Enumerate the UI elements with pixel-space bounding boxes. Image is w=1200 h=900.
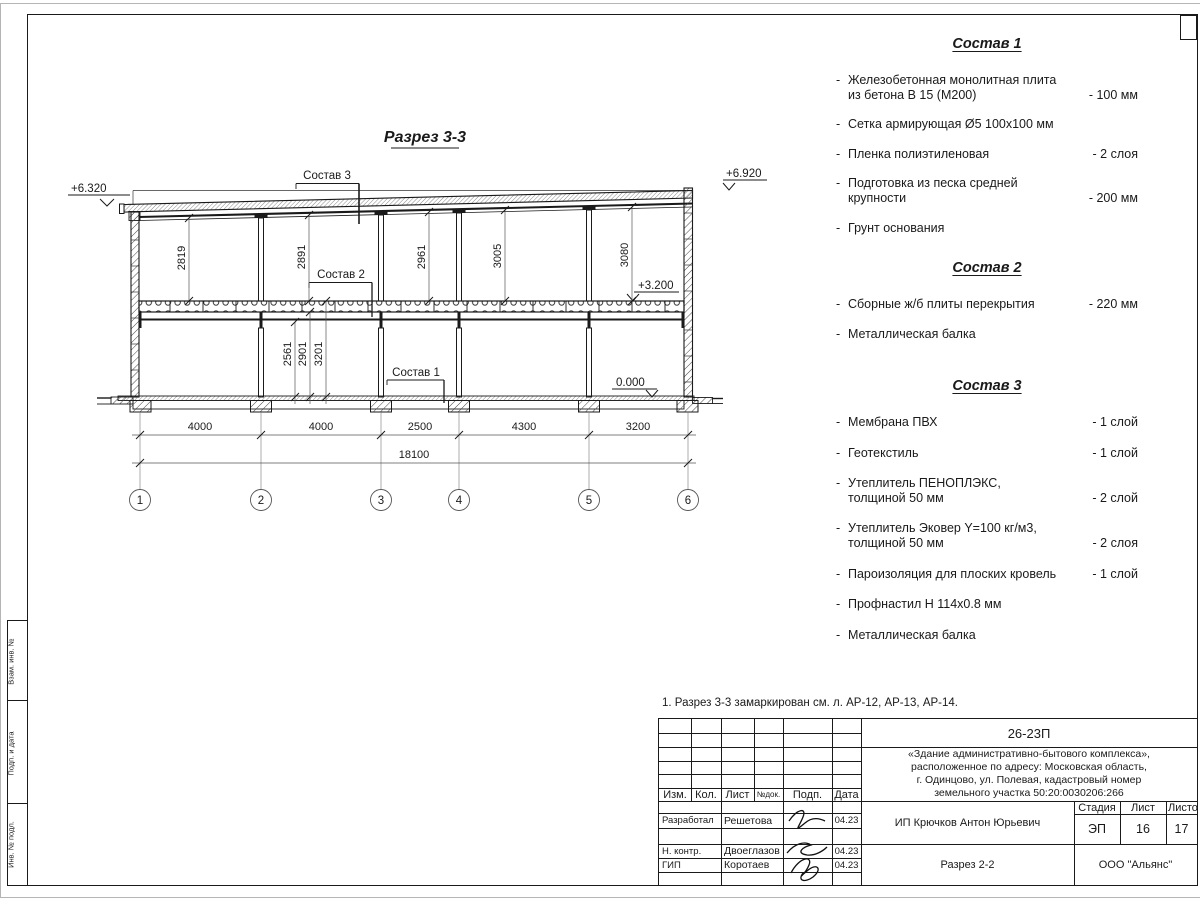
elevation-top-right: +6.920	[723, 168, 767, 190]
stamp-cell-podp-label: Подп. и дата	[7, 724, 16, 784]
elevation-zero-value: 0.000	[616, 377, 645, 389]
company-name: ООО "Альянс"	[1074, 844, 1197, 885]
title-block: Изм. Кол. Лист №док. Подп. Дата Разработ…	[658, 718, 1197, 885]
list-item: - Пленка полиэтиленовая - 2 слоя	[836, 147, 1138, 162]
dim-lower-2: 2901	[297, 342, 309, 366]
elevation-top-right-value: +6.920	[726, 168, 762, 180]
dim-height-2: 2891	[296, 245, 308, 269]
lower-height-dims: 2561 2901 3201	[282, 297, 330, 404]
elevation-zero: 0.000	[612, 377, 658, 397]
dim-total: 18100	[399, 449, 430, 461]
elevation-floor2-value: +3.200	[638, 280, 674, 292]
axis-4: 4	[456, 495, 463, 507]
client-name: ИП Крючков Антон Юрьевич	[861, 801, 1074, 844]
name-developer: Решетова	[721, 813, 786, 828]
axis-1: 1	[137, 495, 143, 507]
stamp-cell-inv: Инв. № подл.	[7, 803, 28, 886]
dim-lower-1: 2561	[282, 342, 294, 366]
date-developer: 04.23	[832, 813, 861, 828]
floor-slab	[139, 301, 684, 312]
sheets-label: Листов	[1166, 801, 1197, 814]
list-item: - Грунт основания	[836, 221, 1138, 236]
dim-height-3: 2961	[416, 245, 428, 269]
signatures	[783, 799, 832, 885]
stamp-cell-podp: Подп. и дата	[7, 700, 28, 804]
dim-height-4: 3005	[492, 244, 504, 268]
list-item: - Пароизоляция для плоских кровель - 1 с…	[836, 567, 1138, 582]
sheet-value: 16	[1120, 814, 1166, 844]
sheets-value: 17	[1166, 814, 1197, 844]
dim-span-5: 3200	[626, 421, 650, 433]
list-item: - Металлическая балка	[836, 628, 1138, 643]
list-item: - Утеплитель Эковер Y=100 кг/м3, толщино…	[836, 521, 1138, 550]
list-item: - Железобетонная монолитная плита из бет…	[836, 73, 1138, 102]
axis-3: 3	[378, 495, 384, 507]
role-gip: ГИП	[659, 858, 724, 872]
dim-height-1: 2819	[176, 246, 188, 270]
list-item: - Металлическая балка	[836, 327, 1138, 342]
format-corner-box	[1180, 15, 1197, 40]
callout-sostav2-label: Состав 2	[317, 269, 365, 281]
section-title: Разрез 3-3	[384, 129, 466, 148]
composition-list-2: Состав 2 - Сборные ж/б плиты перекрытия …	[836, 260, 1138, 356]
dim-height-5: 3080	[619, 243, 631, 267]
section-drawing: Разрез 3-3	[0, 0, 780, 560]
list-item: - Утеплитель ПЕНОПЛЭКС, толщиной 50 мм -…	[836, 476, 1138, 505]
axis-5: 5	[586, 495, 592, 507]
stamp-cell-vzam-label: Взам. инв. №	[7, 632, 16, 692]
callout-sostav3-label: Состав 3	[303, 170, 351, 182]
span-dimensions: 4000 4000 2500 4300 3200 18100	[132, 412, 696, 489]
col-ndok: №док.	[754, 788, 783, 801]
list-item: - Геотекстиль - 1 слой	[836, 446, 1138, 461]
stage-value: ЭП	[1074, 814, 1120, 844]
list-item: - Мембрана ПВХ - 1 слой	[836, 415, 1138, 430]
dim-span-3: 2500	[408, 421, 432, 433]
role-ncontrol: Н. контр.	[659, 844, 724, 858]
stage-label: Стадия	[1074, 801, 1120, 814]
role-developer: Разработал	[659, 813, 724, 828]
section-title-text: Разрез 3-3	[384, 129, 466, 146]
composition-2-title: Состав 2	[836, 260, 1138, 276]
dim-lower-3: 3201	[313, 342, 325, 366]
name-gip: Коротаев	[721, 858, 786, 872]
doc-code: 26-23П	[861, 719, 1197, 747]
project-description: «Здание административно-бытового комплек…	[908, 748, 1150, 800]
axis-bubbles: 1 2 3 4 5 6	[130, 490, 699, 511]
col-list: Лист	[721, 788, 754, 801]
composition-3-title: Состав 3	[836, 378, 1138, 394]
elevation-top-left-value: +6.320	[71, 183, 107, 195]
floor-beam	[139, 312, 684, 328]
dim-span-1: 4000	[188, 421, 212, 433]
ground-slab	[97, 396, 723, 409]
composition-list-3: Состав 3 - Мембрана ПВХ - 1 слой - Геоте…	[836, 378, 1138, 658]
col-kol: Кол.	[691, 788, 721, 801]
stamp-cell-vzam: Взам. инв. №	[7, 620, 28, 701]
list-item: - Сборные ж/б плиты перекрытия - 220 мм	[836, 297, 1138, 312]
axis-2: 2	[258, 495, 264, 507]
left-wall	[131, 212, 139, 397]
stamp-cell-inv-label: Инв. № подл.	[7, 815, 16, 875]
dim-span-4: 4300	[512, 421, 536, 433]
col-izm: Изм.	[659, 788, 691, 801]
col-data: Дата	[832, 788, 861, 801]
composition-list-1: Состав 1 - Железобетонная монолитная пли…	[836, 36, 1138, 250]
view-name: Разрез 2-2	[861, 844, 1074, 885]
dim-span-2: 4000	[309, 421, 333, 433]
callout-sostav1-label: Состав 1	[392, 367, 440, 379]
list-item: - Профнастил Н 114х0.8 мм	[836, 597, 1138, 612]
list-item: - Сетка армирующая Ø5 100х100 мм	[836, 117, 1138, 132]
elevation-top-left: +6.320	[68, 183, 130, 206]
name-ncontrol: Двоеглазов	[721, 844, 786, 858]
axis-6: 6	[685, 495, 691, 507]
sheet-label: Лист	[1120, 801, 1166, 814]
right-wall	[684, 188, 693, 397]
sheet-note: 1. Разрез 3-3 замаркирован см. л. АР-12,…	[662, 697, 958, 709]
list-item: - Подготовка из песка средней крупности …	[836, 176, 1138, 205]
date-ncontrol: 04.23	[832, 844, 861, 858]
composition-1-title: Состав 1	[836, 36, 1138, 52]
date-gip: 04.23	[832, 858, 861, 872]
